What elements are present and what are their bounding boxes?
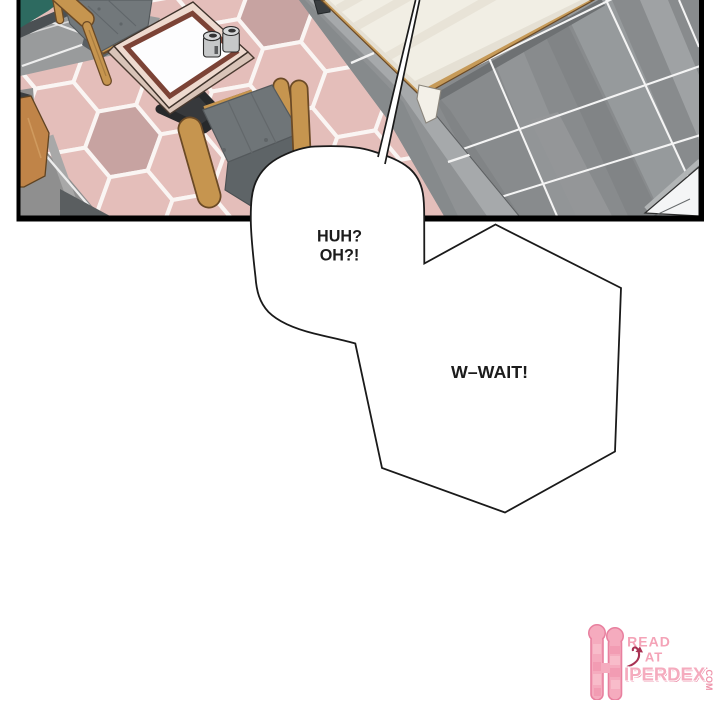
- svg-text:W–WAIT!: W–WAIT!: [451, 362, 528, 382]
- svg-text:OH?!: OH?!: [320, 247, 360, 265]
- svg-text:HUH?: HUH?: [317, 227, 362, 245]
- svg-text:IPERDEX: IPERDEX: [624, 664, 706, 685]
- svg-text:AT: AT: [645, 650, 663, 665]
- svg-text:.COM: .COM: [704, 667, 714, 691]
